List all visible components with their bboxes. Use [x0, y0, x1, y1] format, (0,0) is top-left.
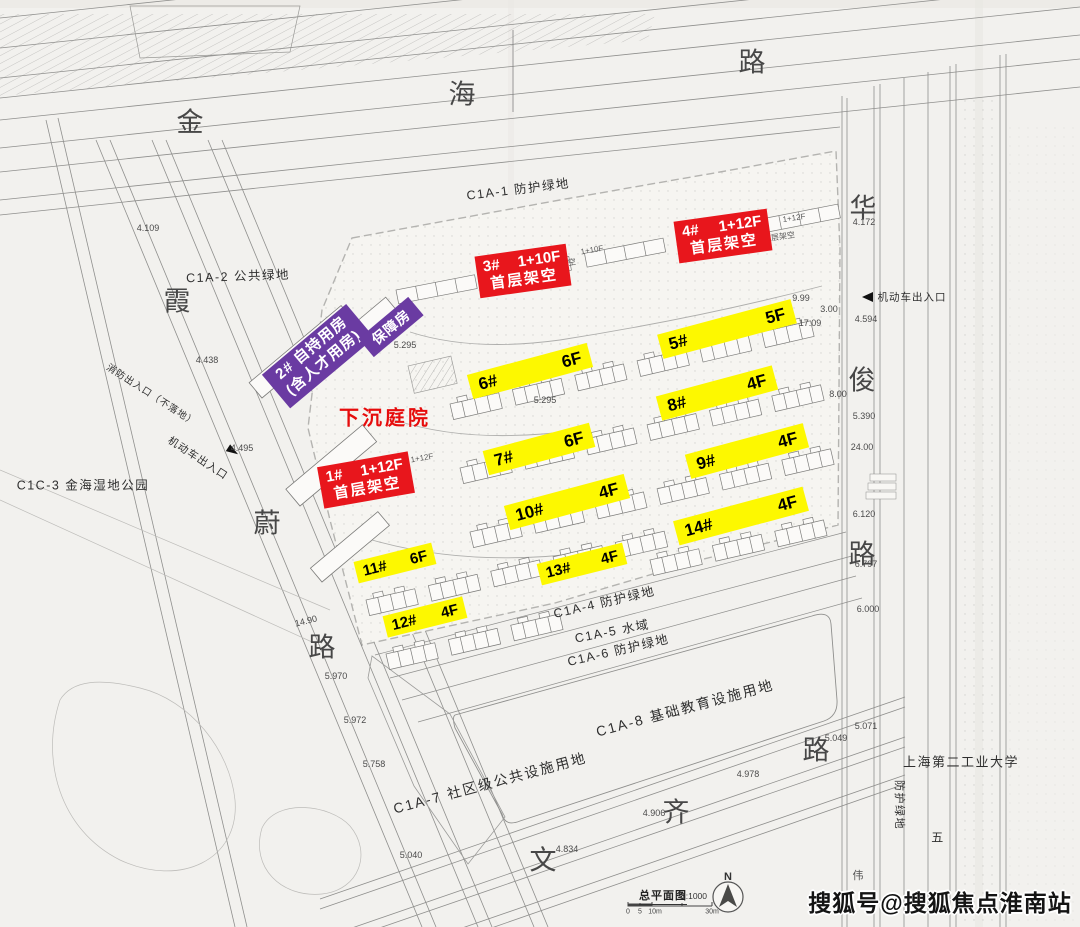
scale-tick: 0 — [626, 909, 630, 916]
building-floors: 6F — [408, 547, 429, 568]
road-name-char: 俊 — [849, 359, 876, 398]
road-name-char: 路 — [309, 626, 336, 665]
spot-elevation: 5.972 — [344, 715, 367, 725]
scale-tick: 10m — [648, 909, 662, 916]
building-id: 10# — [513, 499, 546, 526]
spot-elevation: 4.495 — [231, 443, 254, 453]
spot-elevation: 5.040 — [400, 850, 423, 860]
building-floors: 4F — [596, 479, 620, 503]
building-id: 12# — [390, 611, 418, 634]
spot-elevation: 5.049 — [825, 733, 848, 743]
entrance-label-right-motor: 机动车出入口 — [878, 290, 947, 305]
building-floors: 5F — [763, 304, 787, 328]
building-floors: 4F — [439, 601, 460, 622]
building-floors: 6F — [559, 348, 583, 372]
spot-elevation: 17.09 — [799, 318, 822, 328]
road-name-char: 齐 — [663, 791, 690, 830]
road-name-char: 伟 — [853, 867, 864, 883]
spot-elevation: 5.295 — [534, 395, 557, 405]
building-id: 9# — [694, 450, 717, 474]
spot-elevation: 5.071 — [855, 721, 878, 731]
spot-elevation: 6.120 — [853, 509, 876, 519]
spot-elevation: 4.438 — [196, 355, 219, 365]
road-name-char: 蔚 — [254, 502, 281, 541]
road-name-char: 金 — [177, 101, 204, 140]
spot-elevation: 8.00 — [829, 389, 847, 399]
spot-elevation: 5.758 — [363, 759, 386, 769]
spot-elevation: 5.295 — [394, 340, 417, 350]
spot-elevation: 6.797 — [855, 559, 878, 569]
site-plan-drawing — [0, 0, 1080, 927]
legend-title: 总平面图 — [639, 887, 687, 905]
watermark: 搜狐号@搜狐焦点淮南站 — [808, 884, 1071, 918]
spot-elevation: 4.978 — [737, 769, 760, 779]
scale-tick: 5 — [638, 909, 642, 916]
spot-elevation: 4.172 — [853, 217, 876, 227]
zone-label-wu: 五 — [931, 829, 945, 846]
legend-scale: 1:1000 — [681, 891, 707, 901]
building-floors: 4F — [775, 491, 799, 515]
building-floors: 6F — [562, 427, 586, 451]
zone-label-university: 上海第二工业大学 — [903, 752, 1019, 771]
road-name-char: 海 — [449, 73, 476, 112]
building-id: 6# — [476, 370, 499, 394]
spot-elevation: 24.00 — [851, 442, 874, 452]
road-name-char: 路 — [739, 41, 766, 80]
spot-elevation: 4.109 — [137, 223, 160, 233]
spot-elevation: 5.390 — [853, 411, 876, 421]
spot-elevation: 5.970 — [325, 671, 348, 681]
building-id: 8# — [665, 392, 688, 416]
scale-tick: 30m — [705, 909, 719, 916]
zone-label-green-belt: 防护绿地 — [892, 780, 908, 830]
building-id: 7# — [492, 446, 515, 470]
spot-elevation: 9.99 — [792, 293, 810, 303]
building-floors: 4F — [775, 428, 799, 452]
north-label: N — [724, 871, 732, 883]
building-id: 11# — [361, 557, 389, 579]
building-floors: 4F — [599, 547, 620, 568]
building-id: 14# — [682, 514, 715, 541]
zone-label-c1c3: C1C-3 金海湿地公园 — [17, 475, 150, 494]
spot-elevation: 4.594 — [855, 314, 878, 324]
building-id: 5# — [666, 330, 689, 354]
sunken-courtyard-label: 下沉庭院 — [339, 402, 431, 431]
building-floors: 4F — [745, 370, 769, 394]
spot-elevation: 6.000 — [857, 604, 880, 614]
building-id: 13# — [544, 559, 572, 582]
site-plan-page: 金 海 路 华 俊 路 霞 蔚 路 文 齐 路 伟 C1A-1 防护绿地 C1A… — [0, 0, 1080, 927]
spot-elevation: 4.834 — [556, 844, 579, 854]
spot-elevation: 3.00 — [820, 304, 838, 314]
zone-label-c1a2: C1A-2 公共绿地 — [186, 264, 291, 287]
spot-elevation: 4.906 — [643, 808, 666, 818]
road-name-char: 文 — [530, 839, 557, 878]
